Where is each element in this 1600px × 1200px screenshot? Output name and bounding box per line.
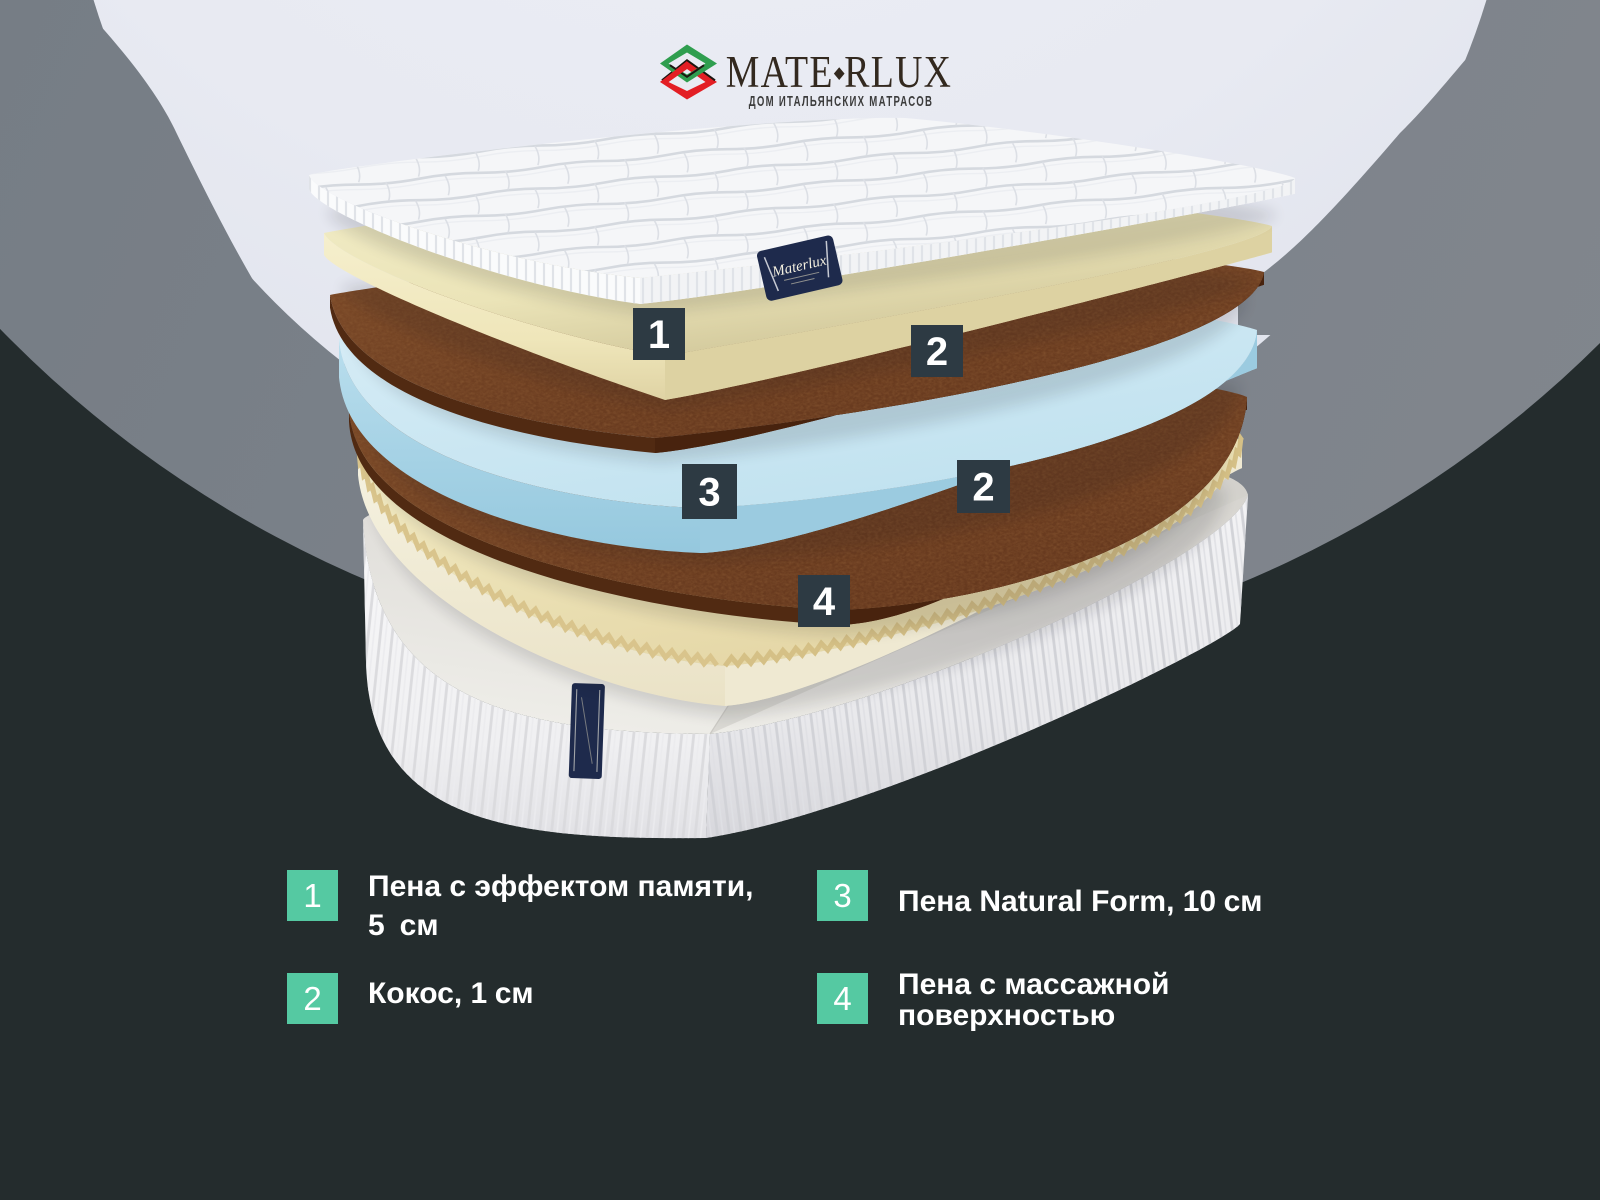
svg-text:4: 4 [813,580,836,624]
svg-text:1: 1 [648,313,670,357]
svg-text:3: 3 [698,471,720,515]
svg-text:2: 2 [926,330,948,374]
svg-text:2: 2 [972,466,994,510]
